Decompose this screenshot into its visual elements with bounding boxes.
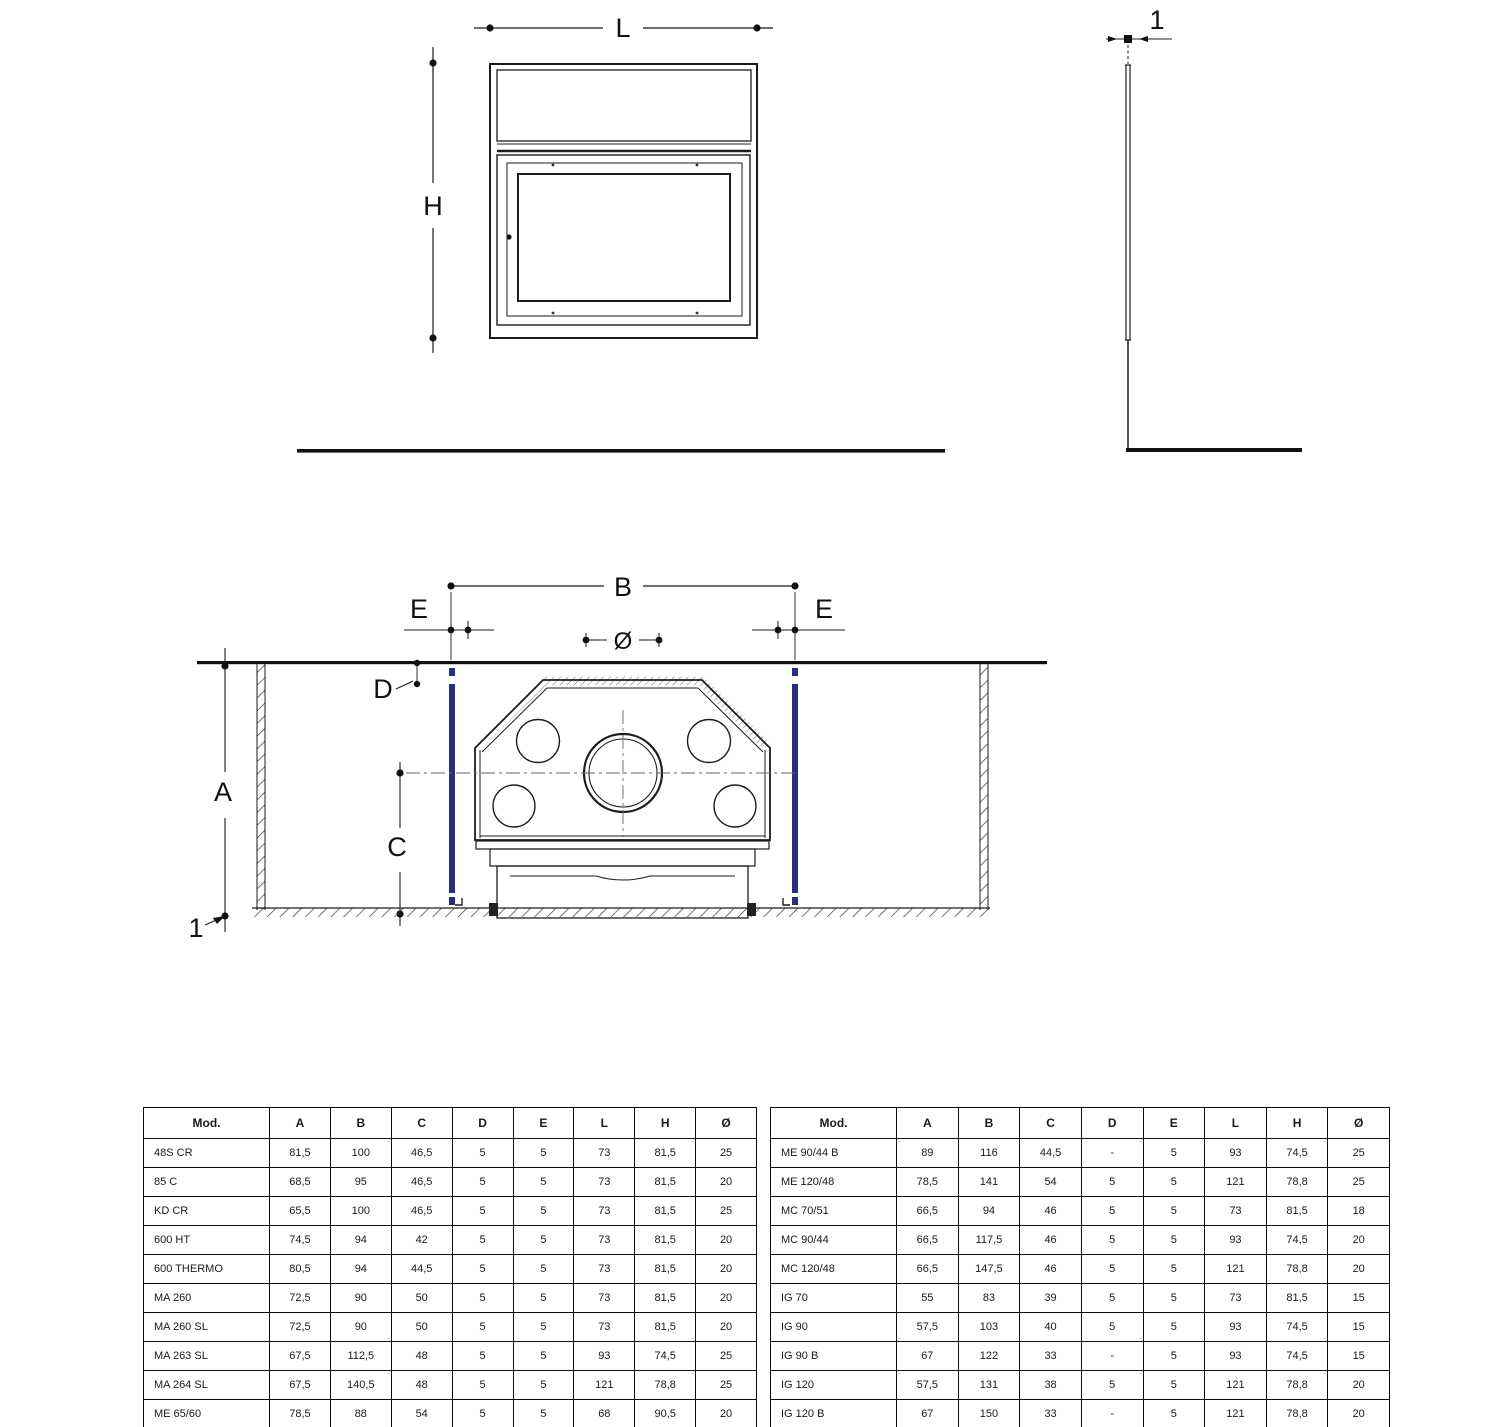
value-cell: 5 — [452, 1400, 513, 1427]
table-header-row: Mod.ABCDELHØ — [144, 1108, 757, 1139]
value-cell: 74,5 — [635, 1342, 696, 1371]
value-cell: 57,5 — [897, 1313, 959, 1342]
table-row: ME 65/6078,58854556890,520 — [144, 1400, 757, 1427]
column-header: H — [635, 1108, 696, 1139]
value-cell: 88 — [330, 1400, 391, 1427]
value-cell: 72,5 — [270, 1284, 331, 1313]
value-cell: 78,8 — [1266, 1255, 1328, 1284]
value-cell: 57,5 — [897, 1371, 959, 1400]
value-cell: 5 — [452, 1226, 513, 1255]
value-cell: 103 — [958, 1313, 1020, 1342]
value-cell: 15 — [1328, 1284, 1390, 1313]
spec-table-left-container: Mod.ABCDELHØ48S CR81,510046,5557381,5258… — [143, 1107, 757, 1427]
value-cell: 90 — [330, 1284, 391, 1313]
value-cell: 20 — [1328, 1226, 1390, 1255]
value-cell: 50 — [391, 1313, 452, 1342]
table-row: IG 90 B6712233-59374,515 — [771, 1342, 1390, 1371]
side-panel — [1125, 65, 1131, 450]
value-cell: 5 — [1081, 1284, 1143, 1313]
dim-label-L: L — [615, 13, 630, 43]
value-cell: 5 — [1143, 1284, 1205, 1313]
table-row: 48S CR81,510046,5557381,525 — [144, 1139, 757, 1168]
value-cell: 121 — [574, 1371, 635, 1400]
fan-circle-bottom-left — [493, 785, 535, 827]
value-cell: 5 — [1143, 1342, 1205, 1371]
value-cell: - — [1081, 1139, 1143, 1168]
value-cell: 5 — [452, 1168, 513, 1197]
value-cell: 81,5 — [1266, 1284, 1328, 1313]
model-cell: ME 120/48 — [771, 1168, 897, 1197]
value-cell: 81,5 — [635, 1168, 696, 1197]
value-cell: 93 — [574, 1342, 635, 1371]
model-cell: MA 264 SL — [144, 1371, 270, 1400]
value-cell: 112,5 — [330, 1342, 391, 1371]
insulation-bar-right-cap-top — [792, 668, 798, 676]
dim-label-H: H — [423, 191, 443, 221]
value-cell: 73 — [574, 1197, 635, 1226]
insulation-bar-left — [449, 684, 455, 893]
value-cell: 48 — [391, 1371, 452, 1400]
value-cell: 54 — [1020, 1168, 1082, 1197]
value-cell: - — [1081, 1342, 1143, 1371]
dim-label-D: D — [373, 674, 393, 704]
dimension-E-left: E — [404, 594, 494, 639]
value-cell: 81,5 — [1266, 1197, 1328, 1226]
firebox-top-view — [406, 680, 798, 918]
value-cell: 74,5 — [1266, 1226, 1328, 1255]
value-cell: 93 — [1205, 1313, 1267, 1342]
value-cell: 46,5 — [391, 1139, 452, 1168]
insulation-bar-right-cap-bottom — [792, 897, 798, 905]
table-row: ME 120/4878,5141545512178,825 — [771, 1168, 1390, 1197]
table-row: KD CR65,510046,5557381,525 — [144, 1197, 757, 1226]
value-cell: 5 — [1081, 1371, 1143, 1400]
column-header: D — [1081, 1108, 1143, 1139]
value-cell: 5 — [1081, 1313, 1143, 1342]
value-cell: 54 — [391, 1400, 452, 1427]
column-header: Mod. — [771, 1108, 897, 1139]
value-cell: 81,5 — [635, 1226, 696, 1255]
table-row: MA 263 SL67,5112,548559374,525 — [144, 1342, 757, 1371]
model-cell: IG 70 — [771, 1284, 897, 1313]
dimension-L: L — [474, 13, 773, 43]
value-cell: 73 — [1205, 1284, 1267, 1313]
value-cell: 20 — [1328, 1371, 1390, 1400]
drawing-canvas: L H 1 — [0, 0, 1500, 1070]
value-cell: 20 — [696, 1284, 757, 1313]
value-cell: 44,5 — [391, 1255, 452, 1284]
value-cell: 66,5 — [897, 1226, 959, 1255]
table-row: IG 9057,510340559374,515 — [771, 1313, 1390, 1342]
value-cell: 100 — [330, 1139, 391, 1168]
value-cell: 5 — [513, 1400, 574, 1427]
model-cell: IG 90 — [771, 1313, 897, 1342]
value-cell: 5 — [513, 1255, 574, 1284]
column-header: H — [1266, 1108, 1328, 1139]
value-cell: 25 — [696, 1342, 757, 1371]
value-cell: 73 — [574, 1313, 635, 1342]
value-cell: 74,5 — [1266, 1313, 1328, 1342]
value-cell: 81,5 — [635, 1255, 696, 1284]
insulation-bar-left-cap-bottom — [449, 897, 455, 905]
value-cell: 73 — [1205, 1197, 1267, 1226]
model-cell: MA 260 SL — [144, 1313, 270, 1342]
dim-label-E-left: E — [410, 594, 428, 624]
value-cell: 46 — [1020, 1226, 1082, 1255]
value-cell: 5 — [1143, 1197, 1205, 1226]
value-cell: 20 — [1328, 1400, 1390, 1427]
value-cell: 25 — [1328, 1168, 1390, 1197]
spec-table-right: Mod.ABCDELHØME 90/44 B8911644,5-59374,52… — [770, 1107, 1390, 1427]
value-cell: 78,5 — [270, 1400, 331, 1427]
model-cell: 48S CR — [144, 1139, 270, 1168]
value-cell: 78,8 — [1266, 1400, 1328, 1427]
value-cell: 66,5 — [897, 1197, 959, 1226]
value-cell: 15 — [1328, 1313, 1390, 1342]
value-cell: 73 — [574, 1168, 635, 1197]
value-cell: 81,5 — [635, 1139, 696, 1168]
value-cell: 78,8 — [1266, 1371, 1328, 1400]
value-cell: 83 — [958, 1284, 1020, 1313]
dim-label-C: C — [387, 832, 407, 862]
column-header: B — [330, 1108, 391, 1139]
dim-label-1-bottom: 1 — [188, 913, 203, 943]
front-floor-line — [297, 449, 945, 453]
value-cell: 94 — [958, 1197, 1020, 1226]
table-row: 600 THERMO80,59444,5557381,520 — [144, 1255, 757, 1284]
value-cell: 74,5 — [270, 1226, 331, 1255]
value-cell: 121 — [1205, 1371, 1267, 1400]
table-row: MC 120/4866,5147,5465512178,820 — [771, 1255, 1390, 1284]
value-cell: 78,5 — [897, 1168, 959, 1197]
value-cell: 131 — [958, 1371, 1020, 1400]
side-view-drawing: 1 — [1106, 5, 1302, 452]
value-cell: 93 — [1205, 1139, 1267, 1168]
table-row: 85 C68,59546,5557381,520 — [144, 1168, 757, 1197]
value-cell: 20 — [696, 1226, 757, 1255]
value-cell: 81,5 — [635, 1313, 696, 1342]
table-row: MA 26072,59050557381,520 — [144, 1284, 757, 1313]
value-cell: 20 — [696, 1400, 757, 1427]
value-cell: 5 — [1143, 1168, 1205, 1197]
masonry-walls — [252, 664, 990, 917]
insulation-bar-right — [792, 684, 798, 893]
column-header: Ø — [1328, 1108, 1390, 1139]
value-cell: 46,5 — [391, 1168, 452, 1197]
value-cell: 141 — [958, 1168, 1020, 1197]
column-header: Ø — [696, 1108, 757, 1139]
value-cell: 5 — [1143, 1400, 1205, 1427]
column-header: D — [452, 1108, 513, 1139]
front-view-drawing: L H — [297, 13, 945, 453]
value-cell: 5 — [1143, 1371, 1205, 1400]
value-cell: 55 — [897, 1284, 959, 1313]
value-cell: 73 — [574, 1226, 635, 1255]
value-cell: 5 — [513, 1313, 574, 1342]
dim-label-A: A — [214, 777, 232, 807]
value-cell: 5 — [513, 1342, 574, 1371]
fan-circle-bottom-right — [714, 785, 756, 827]
value-cell: 67,5 — [270, 1342, 331, 1371]
value-cell: 5 — [452, 1284, 513, 1313]
dimension-flue-diameter: Ø — [583, 628, 663, 655]
model-cell: MC 70/51 — [771, 1197, 897, 1226]
value-cell: 81,5 — [270, 1139, 331, 1168]
value-cell: 74,5 — [1266, 1342, 1328, 1371]
value-cell: 73 — [574, 1139, 635, 1168]
ref-label-1: 1 — [188, 913, 225, 943]
value-cell: 46 — [1020, 1197, 1082, 1226]
value-cell: 5 — [452, 1342, 513, 1371]
value-cell: 33 — [1020, 1342, 1082, 1371]
value-cell: 67,5 — [270, 1371, 331, 1400]
model-cell: IG 120 B — [771, 1400, 897, 1427]
value-cell: 100 — [330, 1197, 391, 1226]
model-cell: MA 263 SL — [144, 1342, 270, 1371]
table-row: MA 260 SL72,59050557381,520 — [144, 1313, 757, 1342]
column-header: L — [1205, 1108, 1267, 1139]
value-cell: 5 — [452, 1139, 513, 1168]
column-header: Mod. — [144, 1108, 270, 1139]
value-cell: 5 — [452, 1197, 513, 1226]
value-cell: 5 — [513, 1284, 574, 1313]
dim-label-diameter: Ø — [614, 628, 633, 655]
value-cell: 67 — [897, 1342, 959, 1371]
value-cell: 5 — [1081, 1255, 1143, 1284]
value-cell: 25 — [696, 1371, 757, 1400]
fireplace-front-outline — [490, 64, 757, 338]
value-cell: 81,5 — [635, 1197, 696, 1226]
value-cell: 140,5 — [330, 1371, 391, 1400]
value-cell: 39 — [1020, 1284, 1082, 1313]
value-cell: 66,5 — [897, 1255, 959, 1284]
value-cell: 117,5 — [958, 1226, 1020, 1255]
value-cell: 42 — [391, 1226, 452, 1255]
dim-label-1-top: 1 — [1149, 5, 1164, 35]
value-cell: 73 — [574, 1284, 635, 1313]
value-cell: 20 — [696, 1255, 757, 1284]
spec-table-right-container: Mod.ABCDELHØME 90/44 B8911644,5-59374,52… — [770, 1107, 1390, 1427]
value-cell: 5 — [1143, 1255, 1205, 1284]
model-cell: KD CR — [144, 1197, 270, 1226]
value-cell: 68,5 — [270, 1168, 331, 1197]
value-cell: 25 — [696, 1139, 757, 1168]
value-cell: 20 — [1328, 1255, 1390, 1284]
dimension-H: H — [423, 47, 443, 353]
value-cell: 40 — [1020, 1313, 1082, 1342]
value-cell: 5 — [1081, 1226, 1143, 1255]
insulation-bars — [449, 668, 798, 905]
dimension-D: D — [373, 660, 420, 704]
value-cell: 48 — [391, 1342, 452, 1371]
value-cell: 80,5 — [270, 1255, 331, 1284]
value-cell: 78,8 — [635, 1371, 696, 1400]
column-header: A — [270, 1108, 331, 1139]
value-cell: 20 — [696, 1313, 757, 1342]
value-cell: 93 — [1205, 1226, 1267, 1255]
dimension-E-right: E — [752, 594, 845, 639]
column-header: B — [958, 1108, 1020, 1139]
value-cell: 68 — [574, 1400, 635, 1427]
column-header: C — [391, 1108, 452, 1139]
value-cell: 5 — [452, 1313, 513, 1342]
value-cell: 67 — [897, 1400, 959, 1427]
value-cell: 50 — [391, 1284, 452, 1313]
value-cell: 93 — [1205, 1342, 1267, 1371]
value-cell: 81,5 — [635, 1284, 696, 1313]
value-cell: 78,8 — [1266, 1168, 1328, 1197]
value-cell: 65,5 — [270, 1197, 331, 1226]
model-cell: IG 120 — [771, 1371, 897, 1400]
spec-table-left: Mod.ABCDELHØ48S CR81,510046,5557381,5258… — [143, 1107, 757, 1427]
value-cell: 150 — [958, 1400, 1020, 1427]
table-row: MC 90/4466,5117,546559374,520 — [771, 1226, 1390, 1255]
value-cell: 121 — [1205, 1255, 1267, 1284]
value-cell: 20 — [696, 1168, 757, 1197]
value-cell: 90,5 — [635, 1400, 696, 1427]
fan-circle-top-right — [688, 720, 731, 763]
value-cell: 122 — [958, 1342, 1020, 1371]
value-cell: 5 — [1143, 1313, 1205, 1342]
table-row: IG 70558339557381,515 — [771, 1284, 1390, 1313]
table-row: ME 90/44 B8911644,5-59374,525 — [771, 1139, 1390, 1168]
model-cell: 600 THERMO — [144, 1255, 270, 1284]
value-cell: 18 — [1328, 1197, 1390, 1226]
value-cell: 46,5 — [391, 1197, 452, 1226]
value-cell: 5 — [452, 1255, 513, 1284]
model-cell: MC 90/44 — [771, 1226, 897, 1255]
dim-label-E-right: E — [815, 594, 833, 624]
value-cell: 33 — [1020, 1400, 1082, 1427]
section-shelf-line — [197, 661, 1047, 664]
value-cell: 38 — [1020, 1371, 1082, 1400]
value-cell: 5 — [1081, 1168, 1143, 1197]
model-cell: ME 90/44 B — [771, 1139, 897, 1168]
column-header: L — [574, 1108, 635, 1139]
value-cell: - — [1081, 1400, 1143, 1427]
table-header-row: Mod.ABCDELHØ — [771, 1108, 1390, 1139]
value-cell: 121 — [1205, 1400, 1267, 1427]
dimension-thickness: 1 — [1106, 5, 1172, 64]
value-cell: 94 — [330, 1255, 391, 1284]
table-row: MA 264 SL67,5140,5485512178,825 — [144, 1371, 757, 1400]
model-cell: 600 HT — [144, 1226, 270, 1255]
dimension-A: A — [214, 648, 232, 932]
value-cell: 5 — [513, 1371, 574, 1400]
column-header: E — [513, 1108, 574, 1139]
column-header: C — [1020, 1108, 1082, 1139]
model-cell: ME 65/60 — [144, 1400, 270, 1427]
model-cell: MA 260 — [144, 1284, 270, 1313]
value-cell: 121 — [1205, 1168, 1267, 1197]
column-header: E — [1143, 1108, 1205, 1139]
technical-drawing-page: L H 1 — [0, 0, 1500, 1427]
table-row: IG 12057,5131385512178,820 — [771, 1371, 1390, 1400]
value-cell: 5 — [1143, 1139, 1205, 1168]
column-header: A — [897, 1108, 959, 1139]
value-cell: 5 — [513, 1197, 574, 1226]
model-cell: 85 C — [144, 1168, 270, 1197]
value-cell: 147,5 — [958, 1255, 1020, 1284]
insulation-bar-left-cap-top — [449, 668, 455, 676]
value-cell: 15 — [1328, 1342, 1390, 1371]
value-cell: 5 — [1081, 1197, 1143, 1226]
value-cell: 95 — [330, 1168, 391, 1197]
table-row: MC 70/5166,59446557381,518 — [771, 1197, 1390, 1226]
table-row: 600 HT74,59442557381,520 — [144, 1226, 757, 1255]
value-cell: 90 — [330, 1313, 391, 1342]
value-cell: 5 — [513, 1139, 574, 1168]
dimension-C: C — [387, 762, 407, 926]
value-cell: 74,5 — [1266, 1139, 1328, 1168]
value-cell: 5 — [513, 1168, 574, 1197]
model-cell: IG 90 B — [771, 1342, 897, 1371]
value-cell: 72,5 — [270, 1313, 331, 1342]
value-cell: 44,5 — [1020, 1139, 1082, 1168]
model-cell: MC 120/48 — [771, 1255, 897, 1284]
value-cell: 5 — [452, 1371, 513, 1400]
value-cell: 46 — [1020, 1255, 1082, 1284]
value-cell: 94 — [330, 1226, 391, 1255]
dim-label-B: B — [614, 572, 632, 602]
door-handle-dot — [506, 234, 511, 239]
value-cell: 5 — [1143, 1226, 1205, 1255]
table-row: IG 120 B6715033-512178,820 — [771, 1400, 1390, 1427]
value-cell: 25 — [696, 1197, 757, 1226]
side-floor-line — [1126, 448, 1302, 452]
section-view-drawing: B E E Ø — [188, 572, 1047, 943]
value-cell: 25 — [1328, 1139, 1390, 1168]
value-cell: 116 — [958, 1139, 1020, 1168]
fan-circle-top-left — [517, 720, 560, 763]
value-cell: 89 — [897, 1139, 959, 1168]
value-cell: 73 — [574, 1255, 635, 1284]
value-cell: 5 — [513, 1226, 574, 1255]
